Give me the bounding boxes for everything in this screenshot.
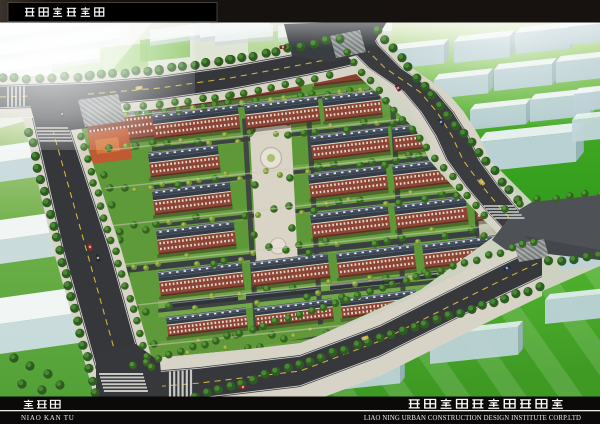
svg-text:NIAO KAN TU: NIAO KAN TU (21, 414, 75, 422)
svg-text:LIAO NING URBAN CONSTRUCTION D: LIAO NING URBAN CONSTRUCTION DESIGN INST… (364, 415, 581, 422)
